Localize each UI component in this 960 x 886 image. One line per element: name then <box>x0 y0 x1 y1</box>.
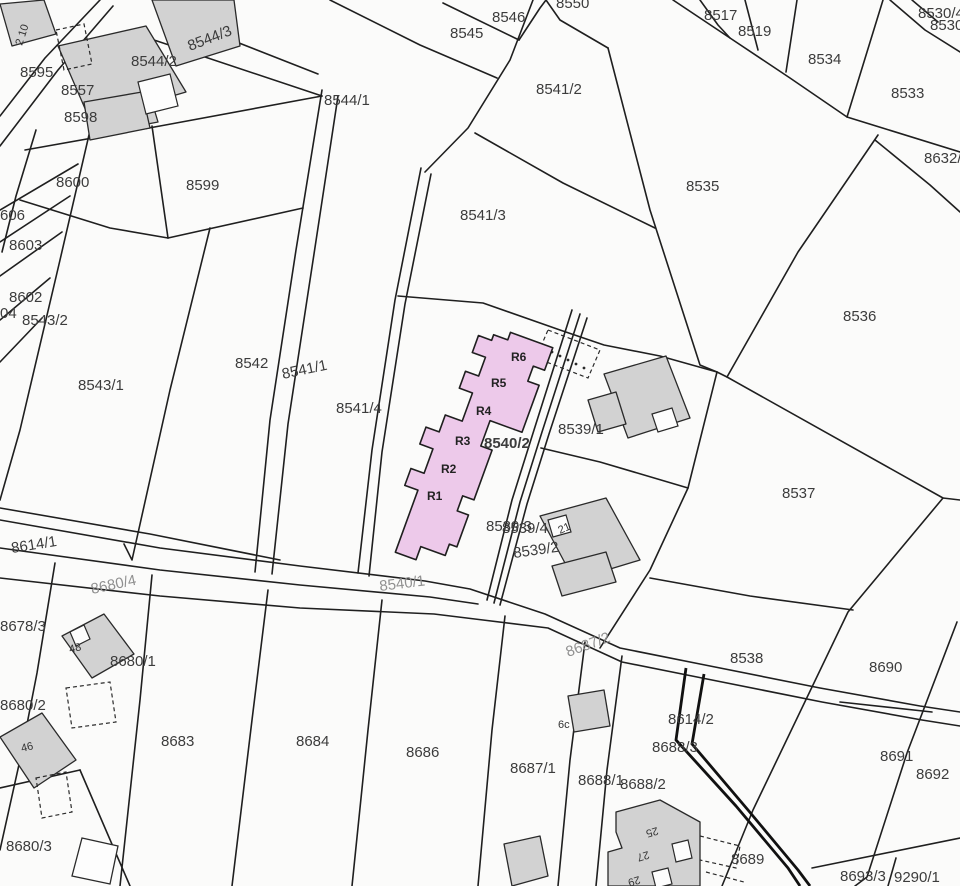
parcel-label: 8600 <box>56 174 89 191</box>
parcel-label: 606 <box>0 207 25 224</box>
parcel-label: 8542 <box>235 355 268 372</box>
parcel-label: 8541/2 <box>536 81 582 98</box>
parcel-label: 8688/3 <box>652 739 698 756</box>
parcel-label: 8538 <box>730 650 763 667</box>
parcel-label: 8686 <box>406 744 439 761</box>
building <box>568 690 610 732</box>
parcel-label: 8692 <box>916 766 949 783</box>
parcel-label: 8632/2 <box>924 150 960 167</box>
parcel-label: 8688/2 <box>620 776 666 793</box>
parcel-label: 8683 <box>161 733 194 750</box>
parcel-label: 8680/1 <box>110 653 156 670</box>
unit-label: R3 <box>455 434 471 448</box>
cadastral-map[interactable]: R6 R5 R4 R3 R2 R1 8546 8545 8517 8519 85… <box>0 0 960 886</box>
parcel-label: 8690 <box>869 659 902 676</box>
parcel-label: 8689 <box>731 851 764 868</box>
unit-label: R6 <box>511 350 527 364</box>
parcel-label: 8544/2 <box>131 53 177 70</box>
parcel-label: 8678/3 <box>0 618 46 635</box>
parcel-label: 8536 <box>843 308 876 325</box>
selected-parcel-label[interactable]: 8540/2 <box>484 435 530 452</box>
parcel-label: 8691 <box>880 748 913 765</box>
parcel-label: 04 <box>0 305 17 322</box>
parcel-label: 8539/1 <box>558 421 604 438</box>
unit-label: R1 <box>427 489 443 503</box>
parcel-label: 8543/2 <box>22 312 68 329</box>
parcel-label: 8537 <box>782 485 815 502</box>
parcel-label: 8539/4 <box>502 520 548 537</box>
parcel-label: 8598 <box>64 109 97 126</box>
parcel-label: 8680/2 <box>0 697 46 714</box>
parcel-label: 8546 <box>492 9 525 26</box>
unit-label: R2 <box>441 462 457 476</box>
parcel-label: 8534 <box>808 51 841 68</box>
parcel-label: 8543/1 <box>78 377 124 394</box>
unit-label: R4 <box>476 404 492 418</box>
parcel-label: 8545 <box>450 25 483 42</box>
map-canvas: R6 R5 R4 R3 R2 R1 8546 8545 8517 8519 85… <box>0 0 960 886</box>
parcel-label: 8687/1 <box>510 760 556 777</box>
unit-label: R5 <box>491 376 507 390</box>
building <box>504 836 548 886</box>
parcel-label: 8688/1 <box>578 772 624 789</box>
parcel-label: 8595 <box>20 64 53 81</box>
parcel-label: 8533 <box>891 85 924 102</box>
house-number: 6c <box>558 719 570 731</box>
parcel-label: 8614/2 <box>668 711 714 728</box>
parcel-label: 8519 <box>738 23 771 40</box>
parcel-label: 8680/3 <box>6 838 52 855</box>
parcel-label: 8602 <box>9 289 42 306</box>
parcel-label: 8517 <box>704 7 737 24</box>
parcel-label: 8684 <box>296 733 329 750</box>
parcel-label: 8599 <box>186 177 219 194</box>
parcel-label: 8535 <box>686 178 719 195</box>
parcel-label: 8693/3 <box>840 868 886 885</box>
parcel-label: 8530 <box>930 17 960 34</box>
parcel-label: 8603 <box>9 237 42 254</box>
parcel-label: 8550 <box>556 0 589 12</box>
parcel-label: 9290/1 <box>894 869 940 886</box>
parcel-label: 8541/3 <box>460 207 506 224</box>
parcel-label: 8544/1 <box>324 92 370 109</box>
parcel-label: 8557 <box>61 82 94 99</box>
parcel-label: 8541/4 <box>336 400 382 417</box>
